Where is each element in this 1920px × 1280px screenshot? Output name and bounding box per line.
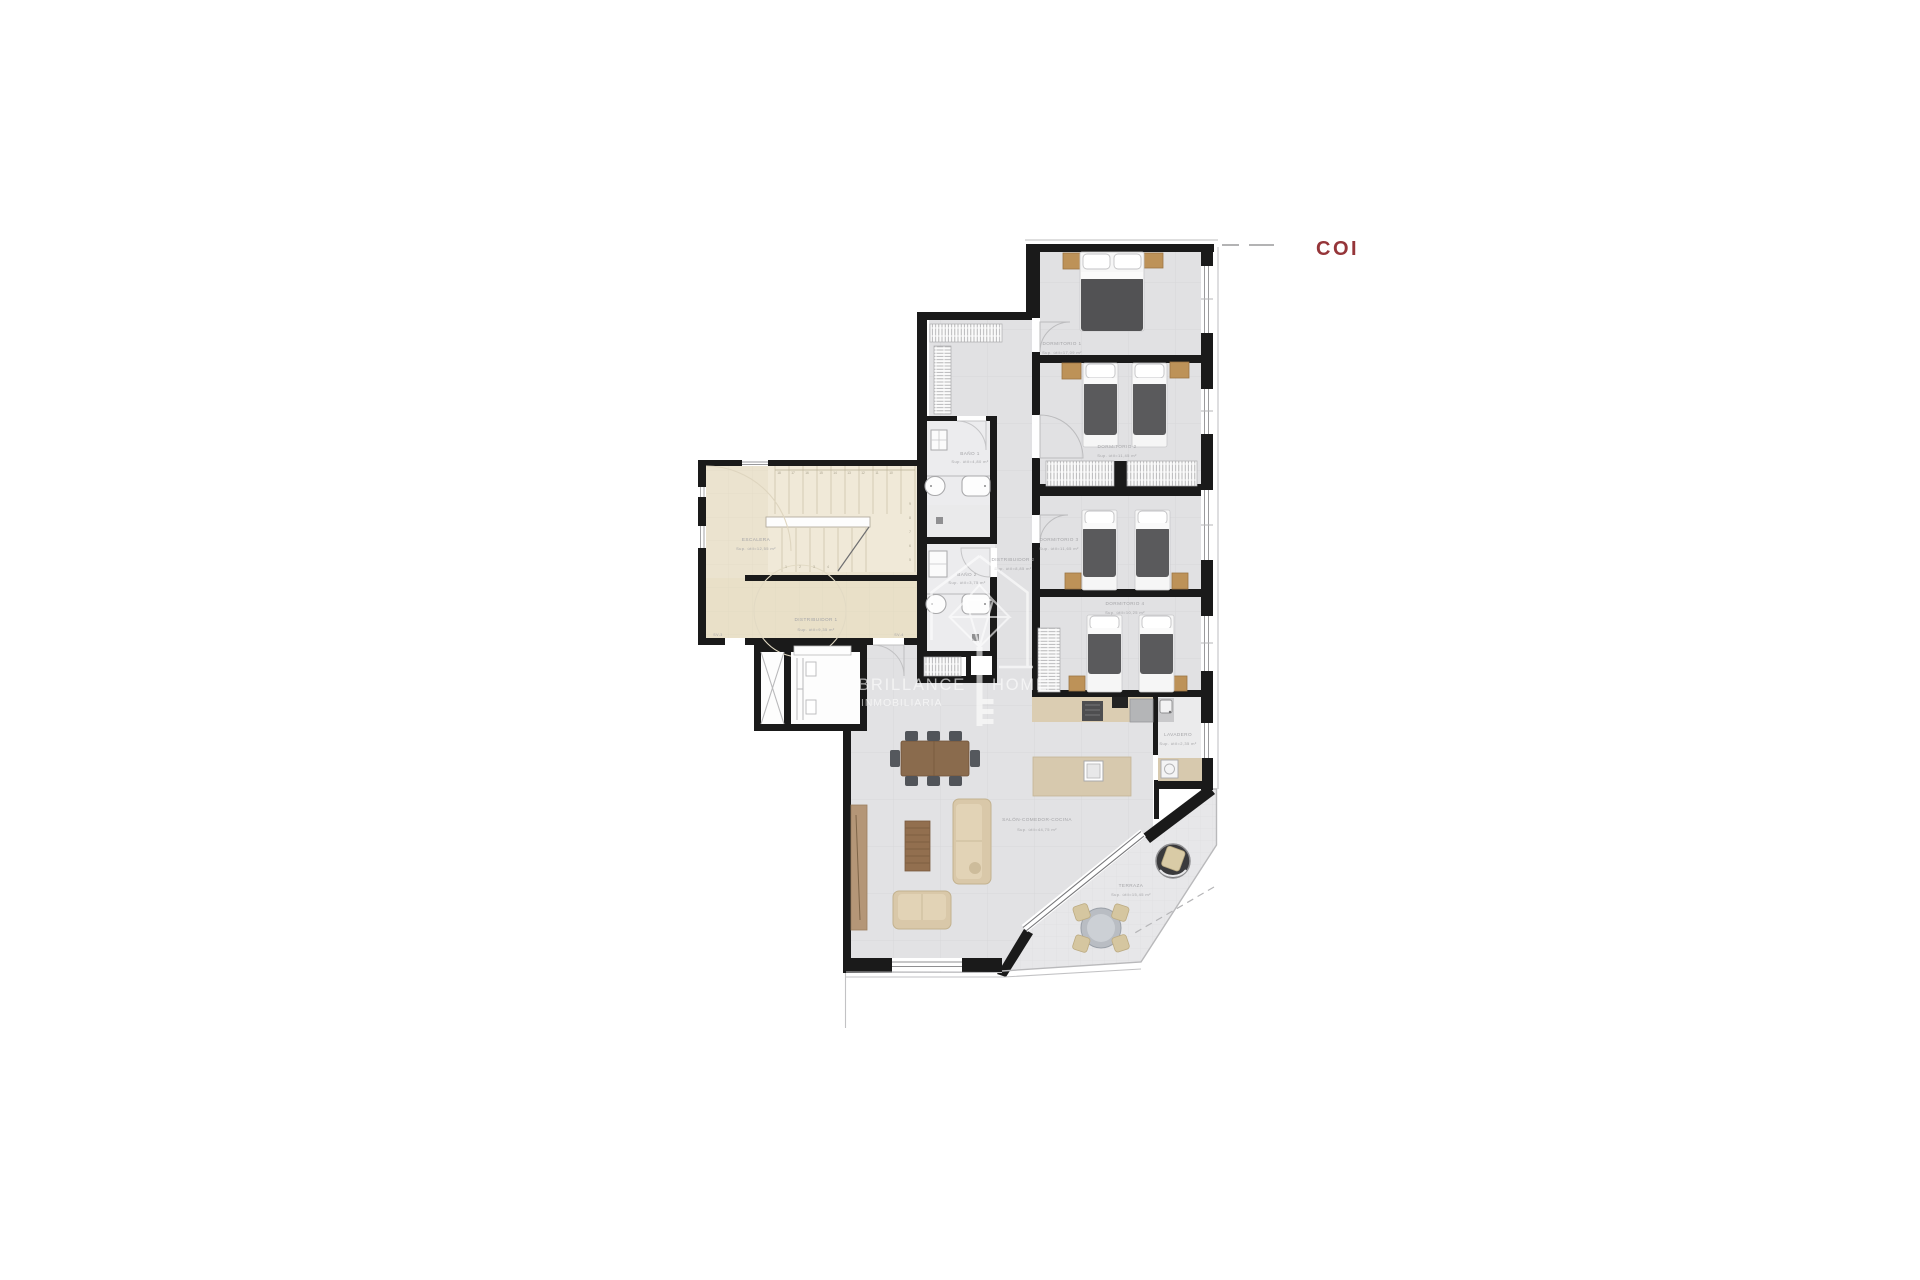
- svg-text:DORMITORIO 3: DORMITORIO 3: [1039, 537, 1078, 542]
- svg-text:DORMITORIO 2: DORMITORIO 2: [1097, 444, 1136, 449]
- svg-text:Sup. útil=17,09 m²: Sup. útil=17,09 m²: [1042, 350, 1082, 355]
- svg-text:Sup. útil=11,45 m²: Sup. útil=11,45 m²: [1097, 453, 1137, 458]
- svg-text:6: 6: [909, 544, 911, 548]
- svg-text:7: 7: [909, 530, 911, 534]
- svg-text:DORMITORIO 1: DORMITORIO 1: [1042, 341, 1081, 346]
- svg-text:ESCALERA: ESCALERA: [742, 537, 771, 542]
- svg-text:8: 8: [909, 516, 911, 520]
- svg-text:Sup. útil=3,75 m²: Sup. útil=3,75 m²: [948, 580, 985, 585]
- svg-text:12: 12: [861, 471, 865, 475]
- svg-text:18: 18: [777, 471, 781, 475]
- svg-text:TERRAZA: TERRAZA: [1119, 883, 1144, 888]
- svg-text:SV-4: SV-4: [894, 633, 903, 637]
- svg-text:15: 15: [819, 471, 823, 475]
- svg-text:COI: COI: [1316, 238, 1359, 260]
- svg-text:INMOBILIARIA: INMOBILIARIA: [861, 697, 942, 709]
- svg-text:Sup. útil=11,65 m²: Sup. útil=11,65 m²: [1039, 546, 1079, 551]
- svg-text:5: 5: [909, 558, 911, 562]
- svg-text:Sup. útil=2,35 m²: Sup. útil=2,35 m²: [1159, 741, 1196, 746]
- svg-text:3: 3: [813, 565, 815, 569]
- svg-text:SALÓN-COMEDOR-COCINA: SALÓN-COMEDOR-COCINA: [1002, 816, 1072, 822]
- svg-text:4: 4: [827, 565, 829, 569]
- svg-text:DISTRIBUIDOR 2: DISTRIBUIDOR 2: [991, 557, 1034, 562]
- svg-text:14: 14: [833, 471, 837, 475]
- svg-text:Sup. útil=9,35 m²: Sup. útil=9,35 m²: [797, 627, 834, 632]
- svg-text:11: 11: [875, 471, 879, 475]
- svg-text:2: 2: [799, 565, 801, 569]
- svg-text:13: 13: [847, 471, 851, 475]
- svg-text:HOME: HOME: [992, 676, 1049, 694]
- svg-text:SV-3: SV-3: [713, 633, 722, 637]
- svg-text:Sup. útil=4,80 m²: Sup. útil=4,80 m²: [951, 459, 988, 464]
- svg-text:LAVADERO: LAVADERO: [1164, 732, 1192, 737]
- svg-text:Sup. útil=12,55 m²: Sup. útil=12,55 m²: [736, 546, 776, 551]
- svg-text:16: 16: [805, 471, 809, 475]
- svg-text:10: 10: [889, 471, 893, 475]
- svg-text:DISTRIBUIDOR 1: DISTRIBUIDOR 1: [794, 617, 837, 622]
- svg-text:BAÑO 1: BAÑO 1: [960, 450, 980, 456]
- svg-text:9: 9: [909, 502, 911, 506]
- svg-text:Sup. útil=10,25 m²: Sup. útil=10,25 m²: [1105, 610, 1145, 615]
- svg-text:1: 1: [785, 565, 787, 569]
- svg-text:17: 17: [791, 471, 795, 475]
- svg-text:Sup. útil=44,75 m²: Sup. útil=44,75 m²: [1017, 827, 1057, 832]
- svg-text:BRILLANCE: BRILLANCE: [858, 676, 966, 694]
- svg-text:Sup. útil=15,45 m²: Sup. útil=15,45 m²: [1111, 892, 1151, 897]
- svg-text:DORMITORIO 4: DORMITORIO 4: [1105, 601, 1144, 606]
